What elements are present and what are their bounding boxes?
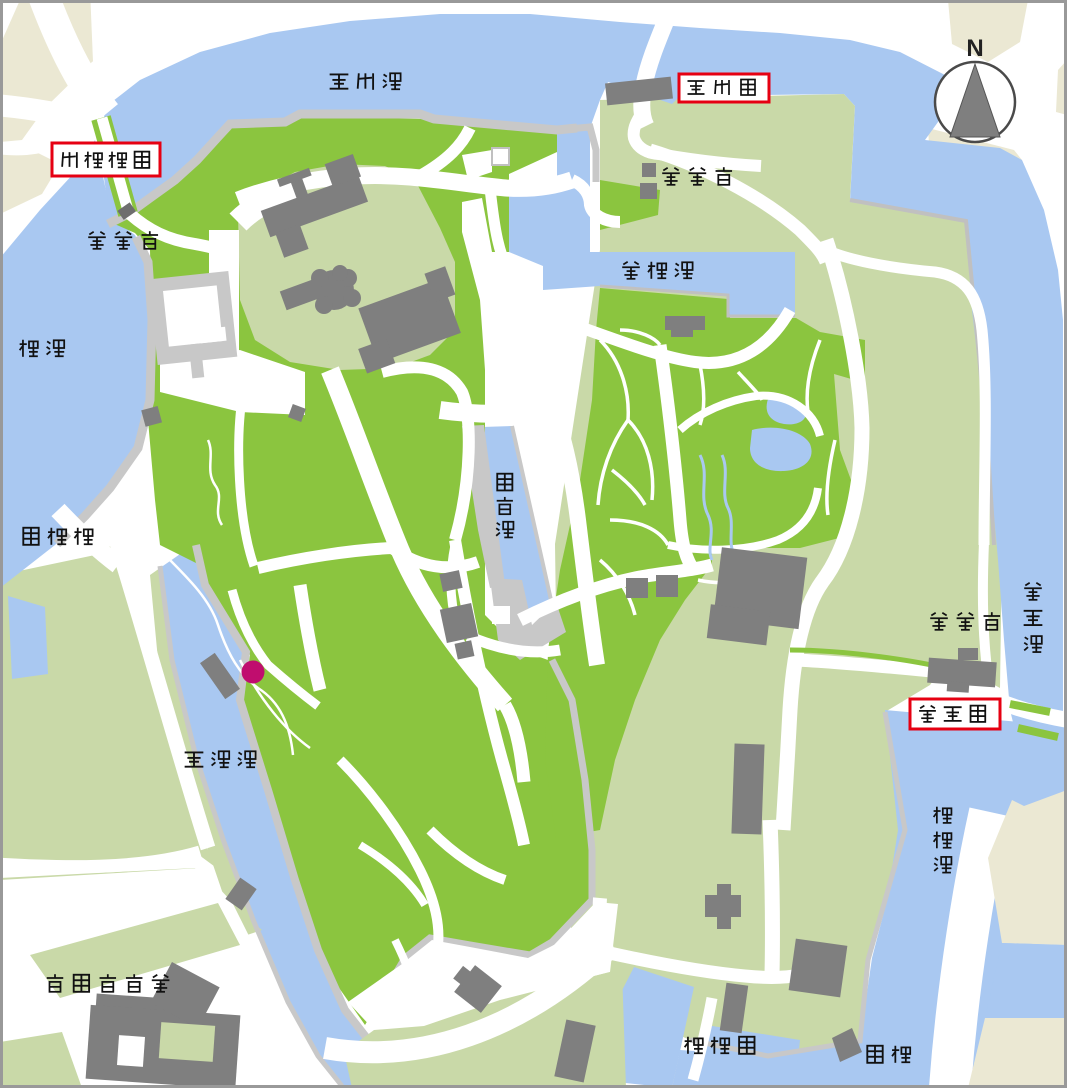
svg-text:N: N	[966, 35, 983, 62]
